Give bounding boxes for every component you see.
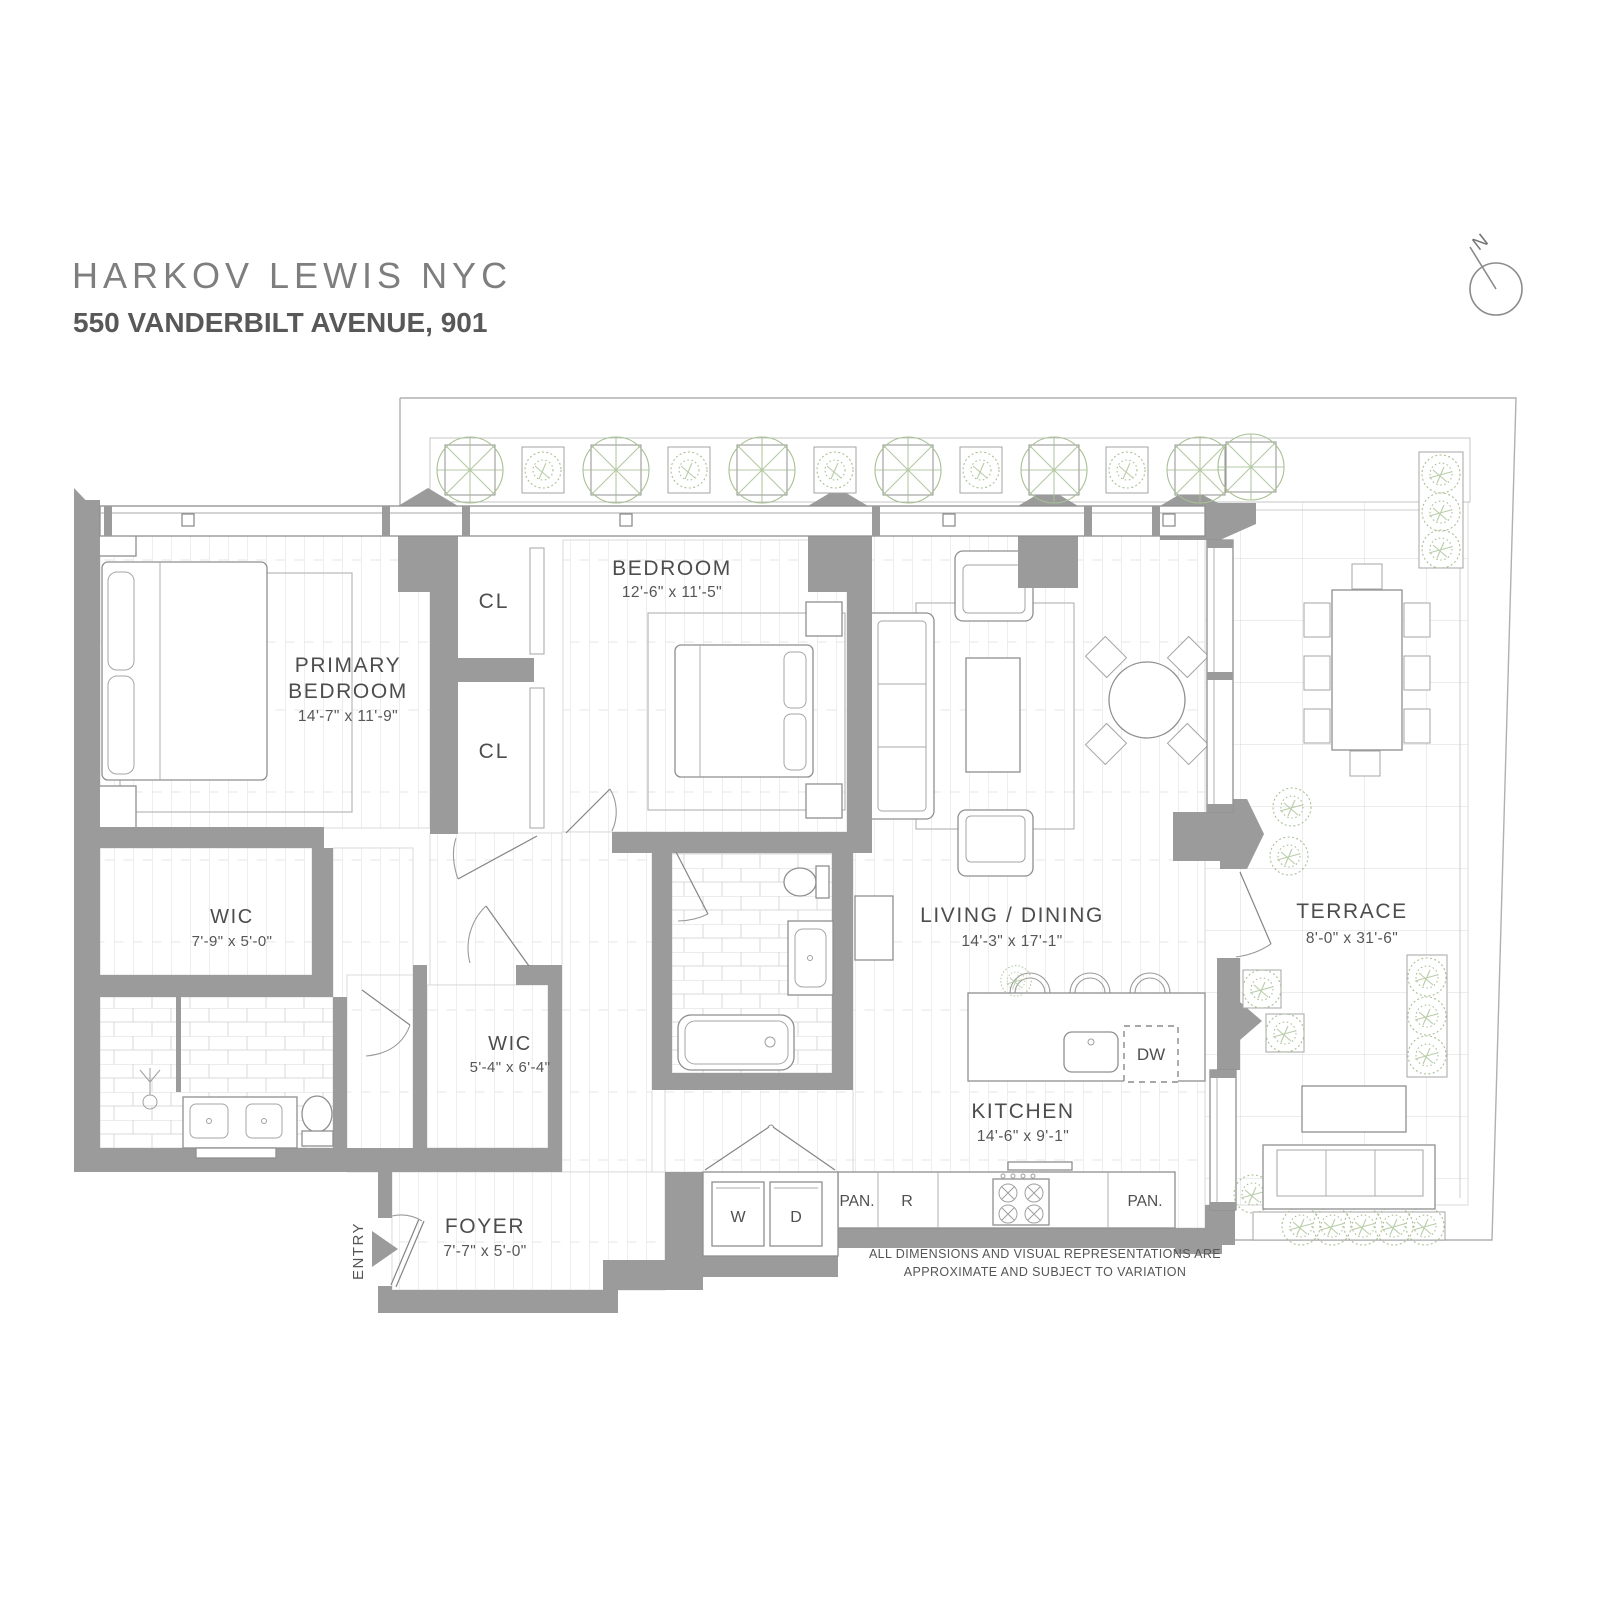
floorplan-page: HARKOV LEWIS NYC 550 VANDERBILT AVENUE, … xyxy=(0,0,1600,1600)
range-hood xyxy=(1008,1162,1072,1170)
bedroom-label: BEDROOM xyxy=(612,557,732,580)
outdoor-chair xyxy=(1350,751,1380,776)
foyer-dims: 7'-7" x 5'-0" xyxy=(443,1243,526,1260)
terrace-dims: 8'-0" x 31'-6" xyxy=(1306,930,1398,947)
wic-hall-label: WIC xyxy=(488,1033,532,1055)
washer-label: W xyxy=(730,1209,746,1226)
pantry-left-label: PAN. xyxy=(839,1193,874,1210)
entry-label: ENTRY xyxy=(350,1222,367,1280)
dryer-label: D xyxy=(790,1209,802,1226)
north-compass-icon: N xyxy=(1469,230,1522,315)
brand-title: HARKOV LEWIS NYC xyxy=(72,255,512,296)
disclaimer-line-2: APPROXIMATE AND SUBJECT TO VARIATION xyxy=(904,1265,1187,1279)
outdoor-dining-table xyxy=(1332,590,1402,750)
outdoor-chair xyxy=(1304,603,1330,637)
outdoor-chair xyxy=(1304,709,1330,743)
outdoor-chair xyxy=(1404,656,1430,690)
pillow xyxy=(784,714,806,770)
pillow xyxy=(784,652,806,708)
outdoor-chair xyxy=(1404,603,1430,637)
disclaimer-line-1: ALL DIMENSIONS AND VISUAL REPRESENTATION… xyxy=(869,1247,1221,1261)
nightstand xyxy=(806,602,842,636)
floor-plan-drawing: HARKOV LEWIS NYC 550 VANDERBILT AVENUE, … xyxy=(0,0,1600,1600)
closet-2-label: CL xyxy=(479,740,510,763)
wic-primary-label: WIC xyxy=(210,906,254,928)
stove xyxy=(993,1179,1049,1225)
primary-bedroom-label-1: PRIMARY xyxy=(295,654,402,677)
pillow xyxy=(108,676,134,774)
island-sink xyxy=(1064,1032,1118,1072)
pantry-right-label: PAN. xyxy=(1127,1193,1162,1210)
primary-bedroom-dims: 14'-7" x 11'-9" xyxy=(298,708,398,725)
wic-primary-dims: 7'-9" x 5'-0" xyxy=(192,933,273,950)
header: HARKOV LEWIS NYC 550 VANDERBILT AVENUE, … xyxy=(72,255,512,338)
outdoor-chair xyxy=(1304,656,1330,690)
pillow xyxy=(108,572,134,670)
nightstand xyxy=(806,784,842,818)
nightstand xyxy=(98,786,136,830)
living-dining-label: LIVING / DINING xyxy=(920,904,1104,927)
wic-hall-dims: 5'-4" x 6'-4" xyxy=(470,1059,551,1076)
brand-address: 550 VANDERBILT AVENUE, 901 xyxy=(73,307,487,338)
console xyxy=(855,896,893,960)
disclaimer: ALL DIMENSIONS AND VISUAL REPRESENTATION… xyxy=(869,1247,1221,1279)
kitchen-dims: 14'-6" x 9'-1" xyxy=(977,1128,1069,1145)
terrace-label: TERRACE xyxy=(1296,900,1408,923)
primary-bedroom-label-2: BEDROOM xyxy=(288,680,408,703)
closet-1-label: CL xyxy=(479,590,510,613)
refrigerator-label: R xyxy=(901,1193,913,1210)
outdoor-chair xyxy=(1352,564,1382,589)
outdoor-table xyxy=(1302,1086,1406,1132)
outdoor-chair xyxy=(1404,709,1430,743)
toilet xyxy=(784,868,816,896)
dining-table xyxy=(1109,662,1185,738)
closet-doors xyxy=(530,548,544,828)
planter-box xyxy=(1419,452,1463,568)
toilet xyxy=(302,1096,332,1132)
living-dining-dims: 14'-3" x 17'-1" xyxy=(961,933,1062,950)
bedroom-dims: 12'-6" x 11'-5" xyxy=(622,584,722,601)
entry-marker: ENTRY xyxy=(350,1222,398,1280)
kitchen-label: KITCHEN xyxy=(971,1100,1074,1123)
foyer-label: FOYER xyxy=(445,1215,525,1238)
dishwasher-label: DW xyxy=(1137,1045,1165,1064)
planter-row xyxy=(1253,1212,1445,1240)
coffee-table xyxy=(966,658,1020,772)
